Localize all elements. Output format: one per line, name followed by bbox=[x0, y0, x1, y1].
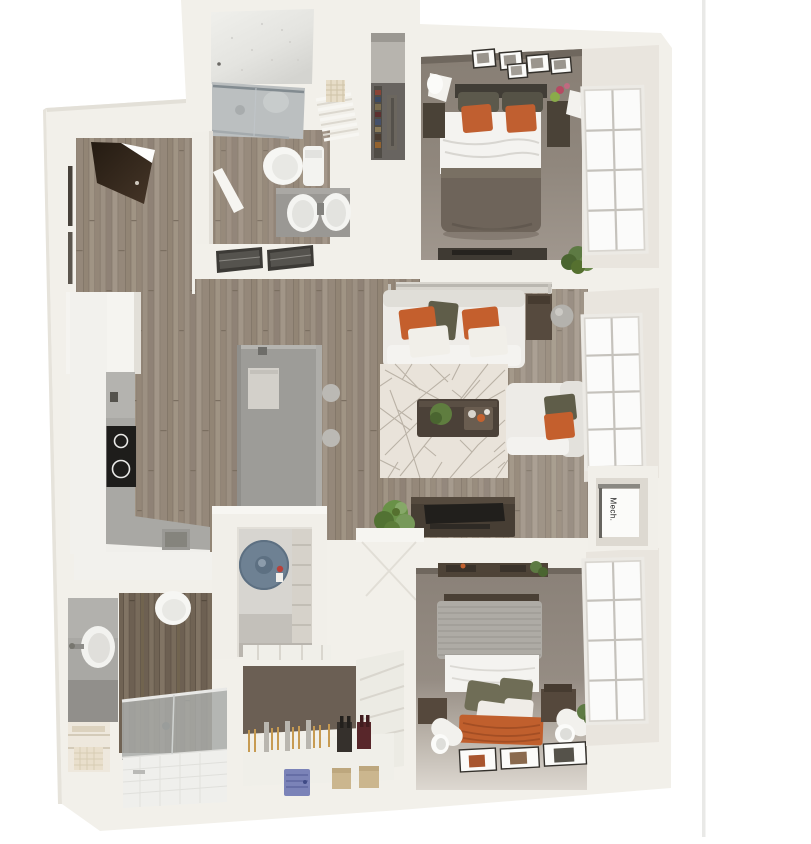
svg-text:Mech.: Mech. bbox=[609, 498, 618, 522]
